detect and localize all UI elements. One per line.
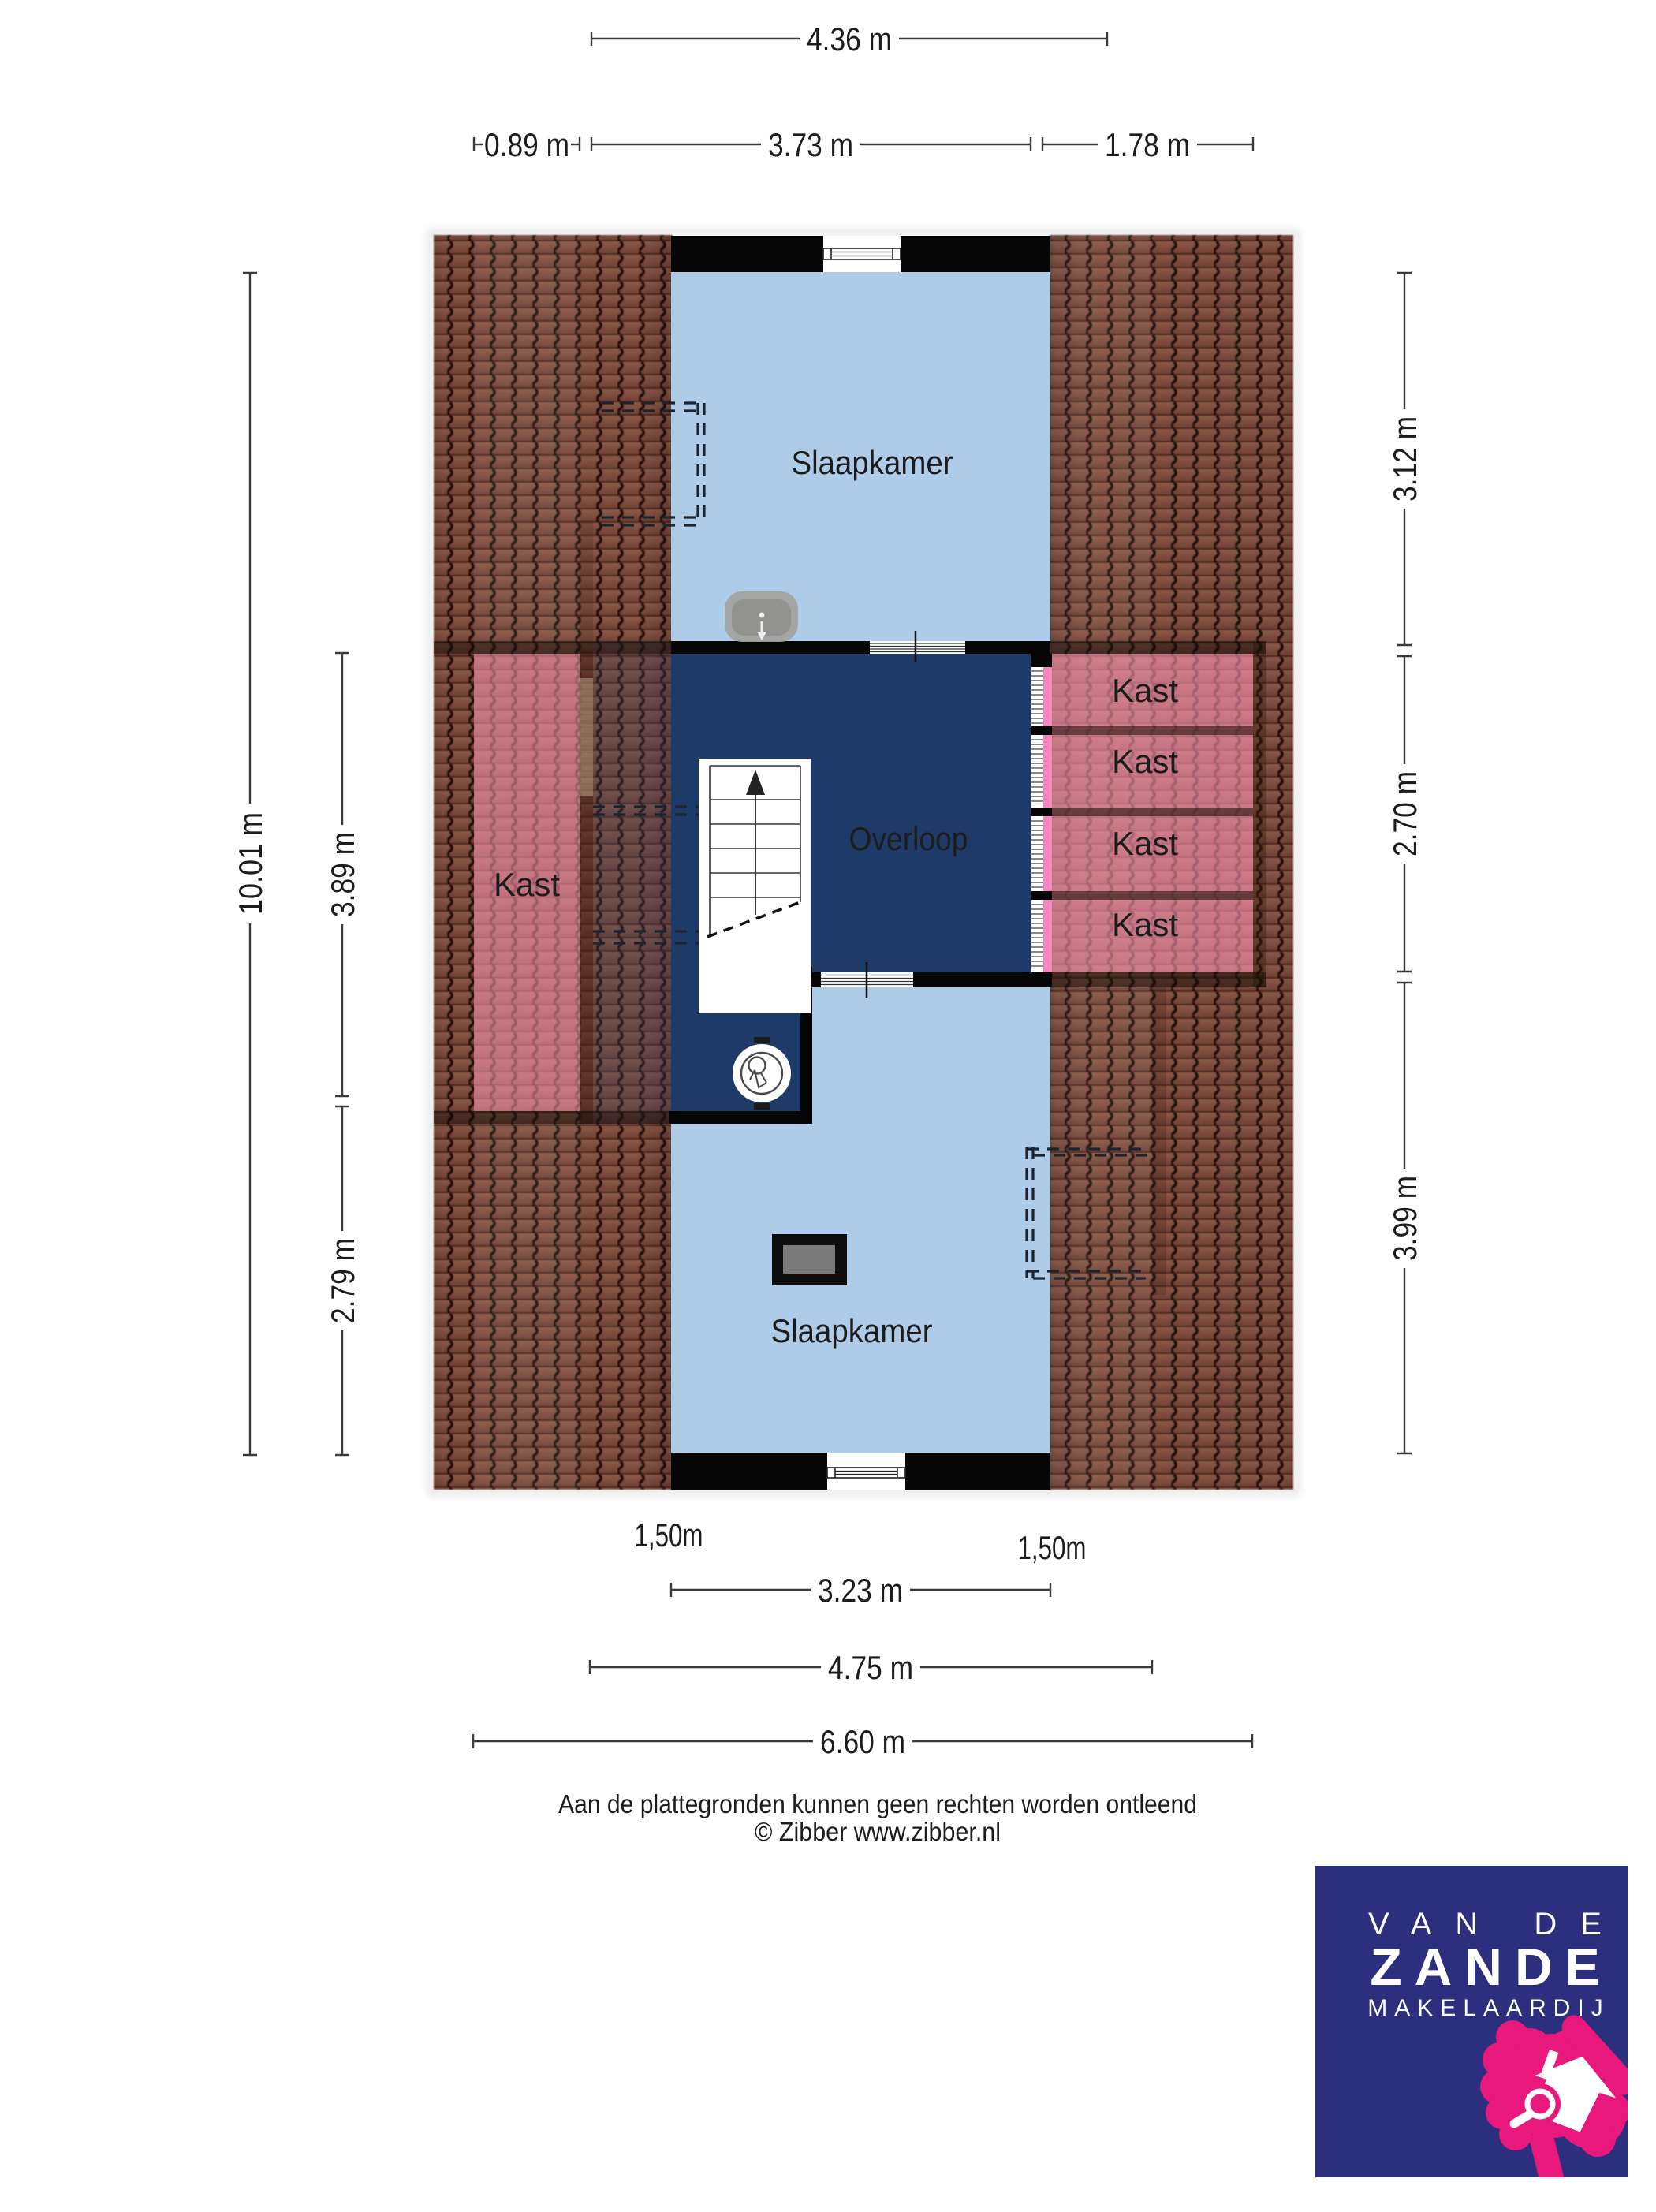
svg-text:Slaapkamer: Slaapkamer (792, 444, 953, 481)
svg-text:Overloop: Overloop (849, 820, 968, 857)
svg-text:2.79 m: 2.79 m (324, 1238, 361, 1323)
svg-text:© Zibber www.zibber.nl: © Zibber www.zibber.nl (755, 1817, 1001, 1846)
svg-text:Slaapkamer: Slaapkamer (771, 1312, 933, 1349)
svg-text:Kast: Kast (1112, 743, 1178, 780)
svg-text:6.60 m: 6.60 m (820, 1723, 905, 1760)
svg-text:Kast: Kast (1112, 906, 1178, 943)
svg-text:4.75 m: 4.75 m (828, 1649, 913, 1686)
svg-text:Kast: Kast (1112, 825, 1178, 862)
svg-text:1,50m: 1,50m (635, 1516, 703, 1554)
svg-text:3.99 m: 3.99 m (1386, 1176, 1423, 1261)
svg-text:3.73 m: 3.73 m (768, 126, 853, 163)
svg-text:VAN DE: VAN DE (1368, 1907, 1625, 1942)
svg-text:Kast: Kast (494, 866, 560, 903)
svg-text:3.12 m: 3.12 m (1386, 416, 1423, 502)
svg-text:Kast: Kast (1112, 672, 1178, 709)
svg-text:3.23 m: 3.23 m (818, 1572, 903, 1609)
svg-text:1,50m: 1,50m (1018, 1529, 1087, 1566)
svg-text:4.36 m: 4.36 m (807, 21, 892, 58)
svg-text:3.89 m: 3.89 m (324, 832, 361, 917)
svg-text:Aan de plattegronden kunnen ge: Aan de plattegronden kunnen geen rechten… (558, 1789, 1197, 1818)
svg-text:ZANDE: ZANDE (1370, 1938, 1612, 1996)
svg-text:10.01 m: 10.01 m (232, 812, 269, 915)
svg-text:0.89 m: 0.89 m (484, 126, 569, 163)
svg-text:2.70 m: 2.70 m (1386, 771, 1423, 856)
svg-text:1.78 m: 1.78 m (1105, 126, 1190, 163)
